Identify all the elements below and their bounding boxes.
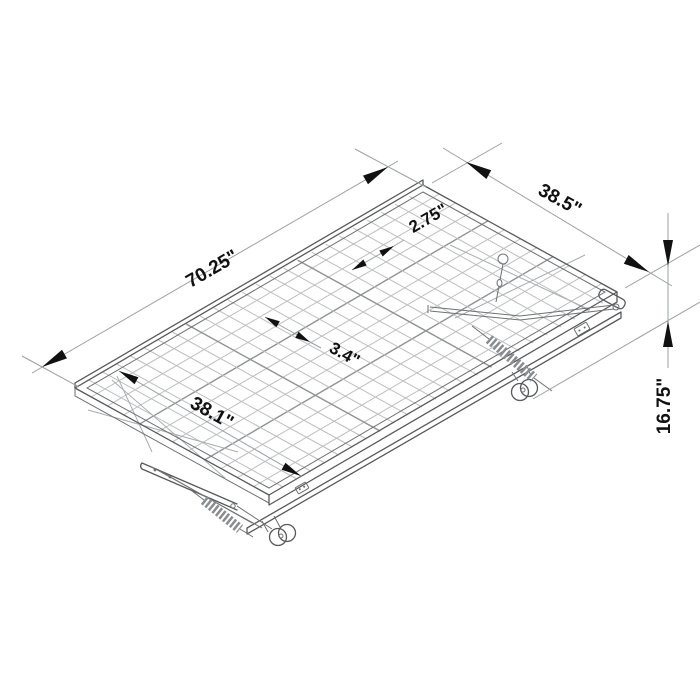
dimension-height: 16.75" — [533, 213, 700, 434]
dimension-width-label: 38.5" — [534, 180, 584, 221]
bed-frame-drawing: 70.25" 38.5" 16.75" 2.75" — [0, 0, 700, 700]
dimension-length-label: 70.25" — [183, 246, 242, 292]
dimension-inner-width: 38.1" — [119, 371, 301, 476]
dimension-height-label: 16.75" — [654, 378, 675, 435]
dimension-width: 38.5" — [432, 143, 700, 288]
deck-frame — [75, 180, 627, 505]
dimension-annotations: 70.25" 38.5" 16.75" 2.75" — [22, 143, 700, 476]
dimension-diagram: 70.25" 38.5" 16.75" 2.75" — [0, 0, 700, 700]
base-and-legs — [141, 312, 621, 546]
dimension-wire-spacing-cross-label: 3.4" — [326, 338, 363, 370]
dimension-length: 70.25" — [22, 149, 426, 387]
dimension-wire-spacing-cross: 3.4" — [265, 317, 363, 370]
dimension-inner-width-label: 38.1" — [186, 393, 236, 434]
caster-wheel — [262, 516, 296, 546]
pull-ring — [498, 254, 508, 264]
